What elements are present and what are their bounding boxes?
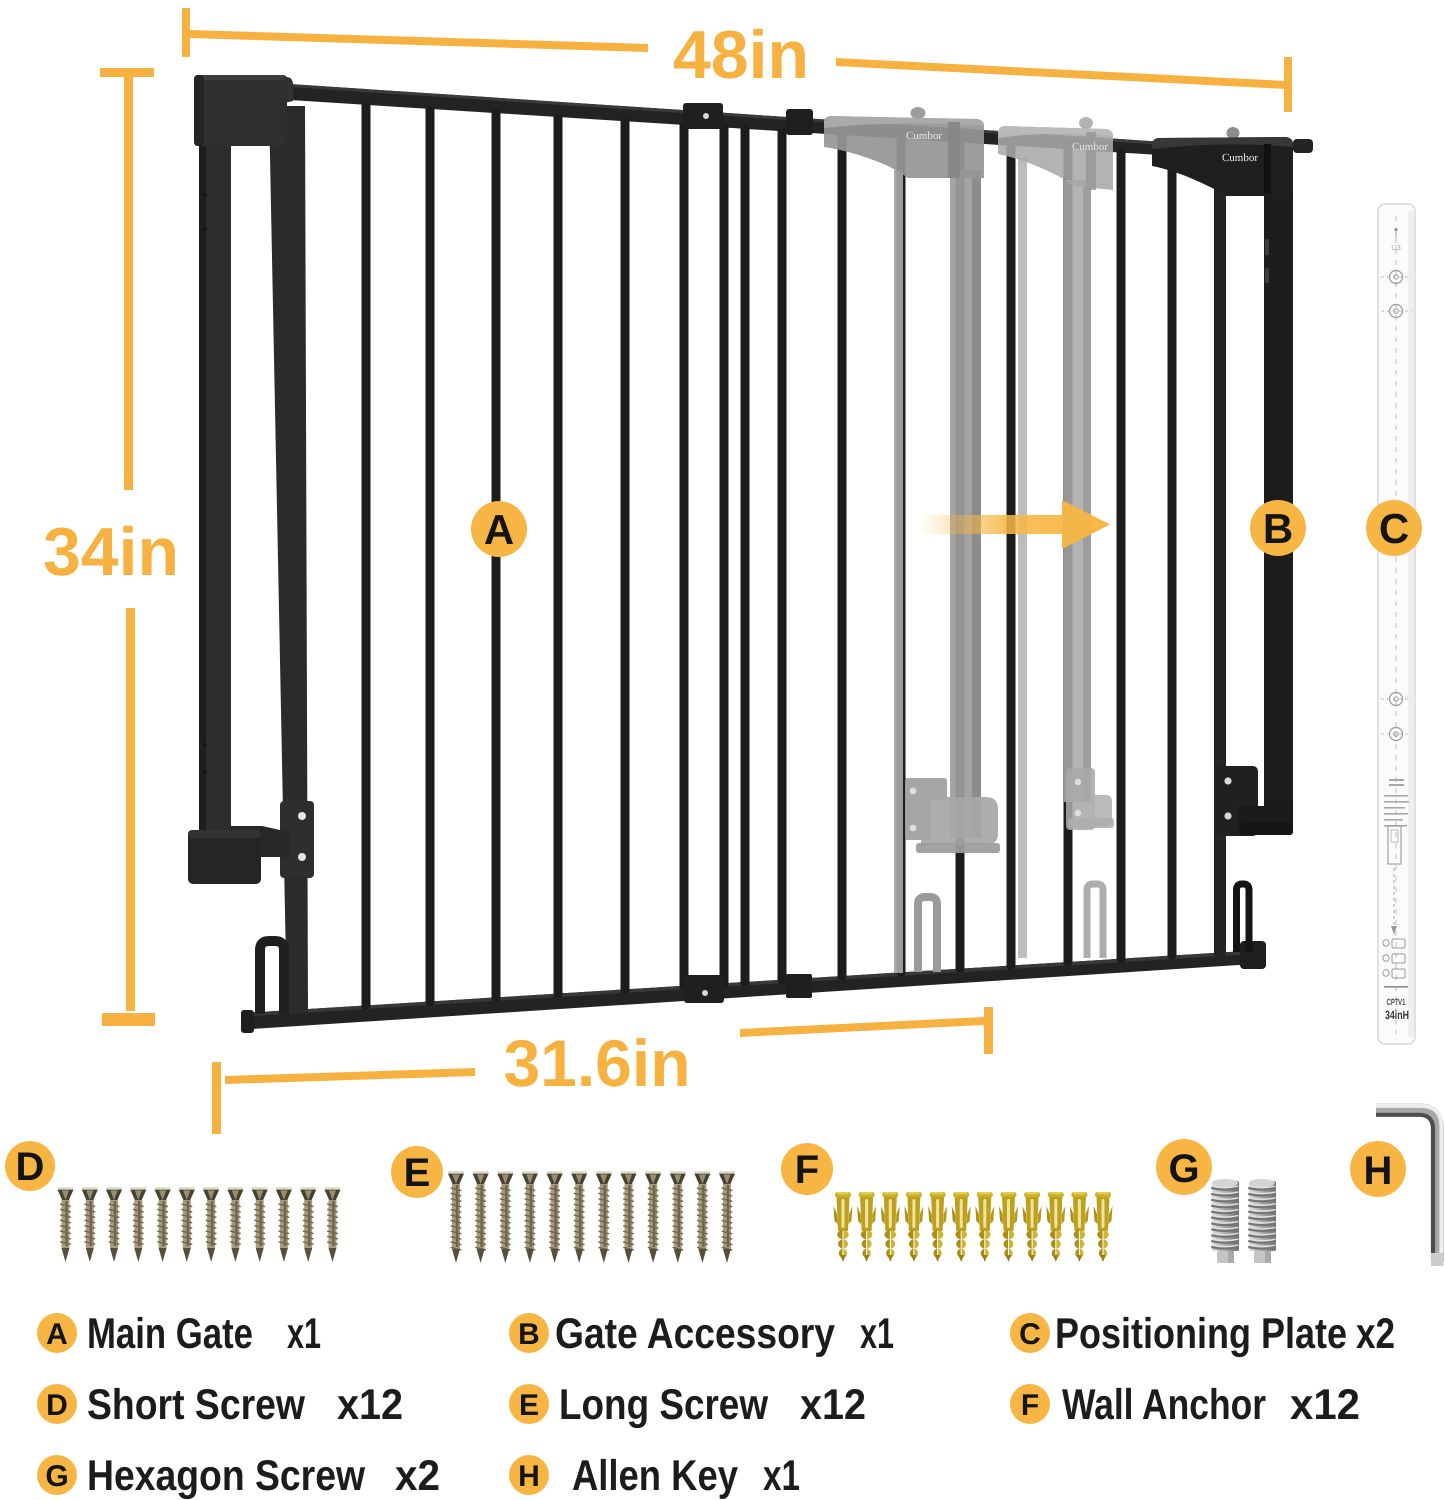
- svg-text:Gate Accessory: Gate Accessory: [555, 1310, 835, 1358]
- svg-text:Main Gate: Main Gate: [87, 1310, 253, 1358]
- svg-text:B: B: [1263, 505, 1293, 552]
- svg-text:x1: x1: [763, 1452, 800, 1500]
- svg-text:48in: 48in: [673, 17, 809, 93]
- svg-text:G: G: [1168, 1147, 1199, 1191]
- svg-text:Cumbor: Cumbor: [1072, 141, 1108, 153]
- svg-text:x1: x1: [287, 1310, 321, 1358]
- svg-text:31.6in: 31.6in: [503, 1026, 690, 1100]
- svg-text:Cumbor: Cumbor: [1222, 152, 1258, 164]
- svg-text:A: A: [46, 1318, 68, 1351]
- svg-text:x2: x2: [1356, 1310, 1395, 1358]
- svg-text:C: C: [1379, 505, 1409, 552]
- svg-text:x1: x1: [860, 1310, 894, 1358]
- svg-text:B: B: [518, 1318, 540, 1351]
- svg-text:D: D: [46, 1389, 68, 1422]
- svg-text:Wall Anchor: Wall Anchor: [1062, 1381, 1266, 1429]
- svg-text:F: F: [1021, 1389, 1039, 1422]
- svg-text:Allen Key: Allen Key: [572, 1452, 738, 1500]
- svg-text:34inH: 34inH: [1385, 1008, 1409, 1022]
- svg-text:U3: U3: [1391, 243, 1401, 252]
- svg-text:34in: 34in: [43, 514, 179, 590]
- svg-text:G: G: [45, 1460, 68, 1493]
- svg-text:E: E: [519, 1389, 539, 1422]
- svg-text:↑: ↑: [1392, 224, 1400, 241]
- svg-text:A: A: [484, 506, 514, 553]
- svg-text:H: H: [1364, 1149, 1393, 1193]
- svg-text:CP7V1: CP7V1: [1387, 997, 1406, 1007]
- svg-text:Cumbor: Cumbor: [906, 130, 942, 142]
- svg-text:x2: x2: [395, 1452, 440, 1500]
- svg-text:Short Screw: Short Screw: [87, 1381, 305, 1429]
- svg-text:Long Screw: Long Screw: [559, 1381, 768, 1429]
- svg-text:E: E: [404, 1151, 431, 1195]
- svg-text:x12: x12: [800, 1381, 866, 1429]
- svg-text:C: C: [1019, 1318, 1041, 1351]
- svg-text:Hexagon Screw: Hexagon Screw: [87, 1452, 365, 1500]
- svg-text:H: H: [518, 1460, 540, 1493]
- svg-text:x12: x12: [1290, 1381, 1360, 1429]
- svg-text:x12: x12: [337, 1381, 403, 1429]
- svg-text:D: D: [16, 1145, 45, 1189]
- svg-text:Positioning Plate: Positioning Plate: [1055, 1310, 1347, 1358]
- svg-text:F: F: [795, 1148, 819, 1192]
